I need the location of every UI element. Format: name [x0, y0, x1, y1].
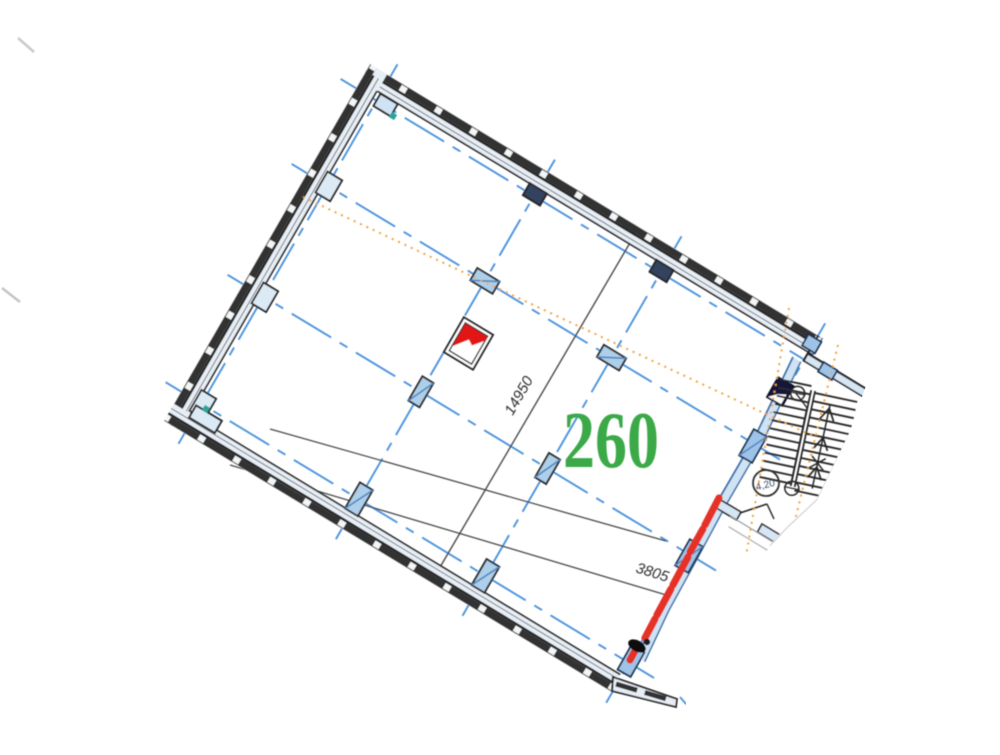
svg-text:260: 260: [563, 397, 659, 485]
